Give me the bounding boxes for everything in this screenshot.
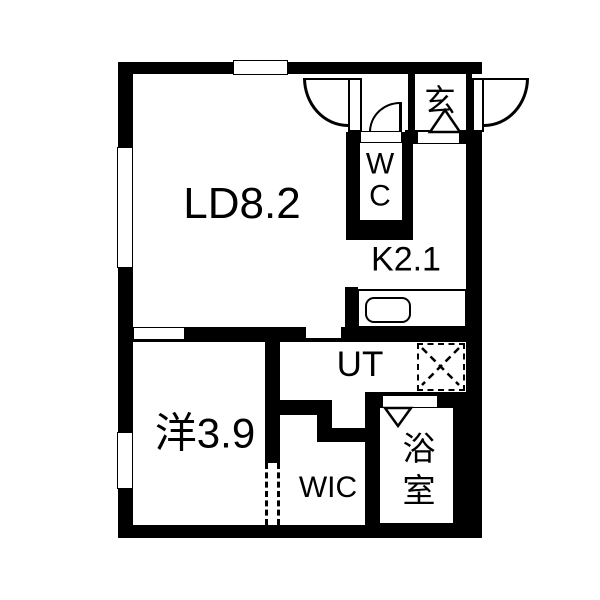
room-label-western-room: 洋3.9 xyxy=(155,410,255,455)
room-label-walk-in-closet: WIC xyxy=(299,472,357,504)
room-label-entrance: 玄 xyxy=(425,84,456,117)
room-label-utility: UT xyxy=(337,346,384,384)
room-label-bathroom: 浴 室 xyxy=(403,428,436,512)
room-label-living-dining: LD8.2 xyxy=(183,180,300,228)
bathroom-door-triangle-icon xyxy=(382,406,414,428)
wc-door-leaf xyxy=(399,102,402,132)
wall-right xyxy=(466,130,482,538)
window-left-upper xyxy=(117,147,133,268)
entrance-door-arc-left xyxy=(303,78,348,127)
washing-machine-space xyxy=(417,343,465,391)
window-top-wall xyxy=(233,60,288,75)
floor-plan-canvas: LD8.2 K2.1 W C 玄 UT 洋3.9 WIC 浴 室 xyxy=(0,0,600,600)
entrance-door-leaf-left xyxy=(348,78,362,132)
wc-threshold xyxy=(360,131,402,143)
washing-machine-x-icon xyxy=(419,345,462,388)
wall-top xyxy=(118,62,482,74)
window-left-lower xyxy=(117,432,133,489)
closet-open-wall xyxy=(265,463,280,525)
western-room-door-opening xyxy=(133,327,185,340)
entrance-door-leaf-right xyxy=(472,78,484,132)
entrance-door-arc-right xyxy=(484,78,529,127)
room-label-toilet: W C xyxy=(366,149,394,214)
room-label-kitchen: K2.1 xyxy=(371,242,441,279)
kitchen-sink xyxy=(365,297,411,323)
wall-hall-entrance-divider xyxy=(408,73,415,132)
utility-passage-opening xyxy=(306,327,341,338)
wc-door-arc xyxy=(369,102,400,132)
